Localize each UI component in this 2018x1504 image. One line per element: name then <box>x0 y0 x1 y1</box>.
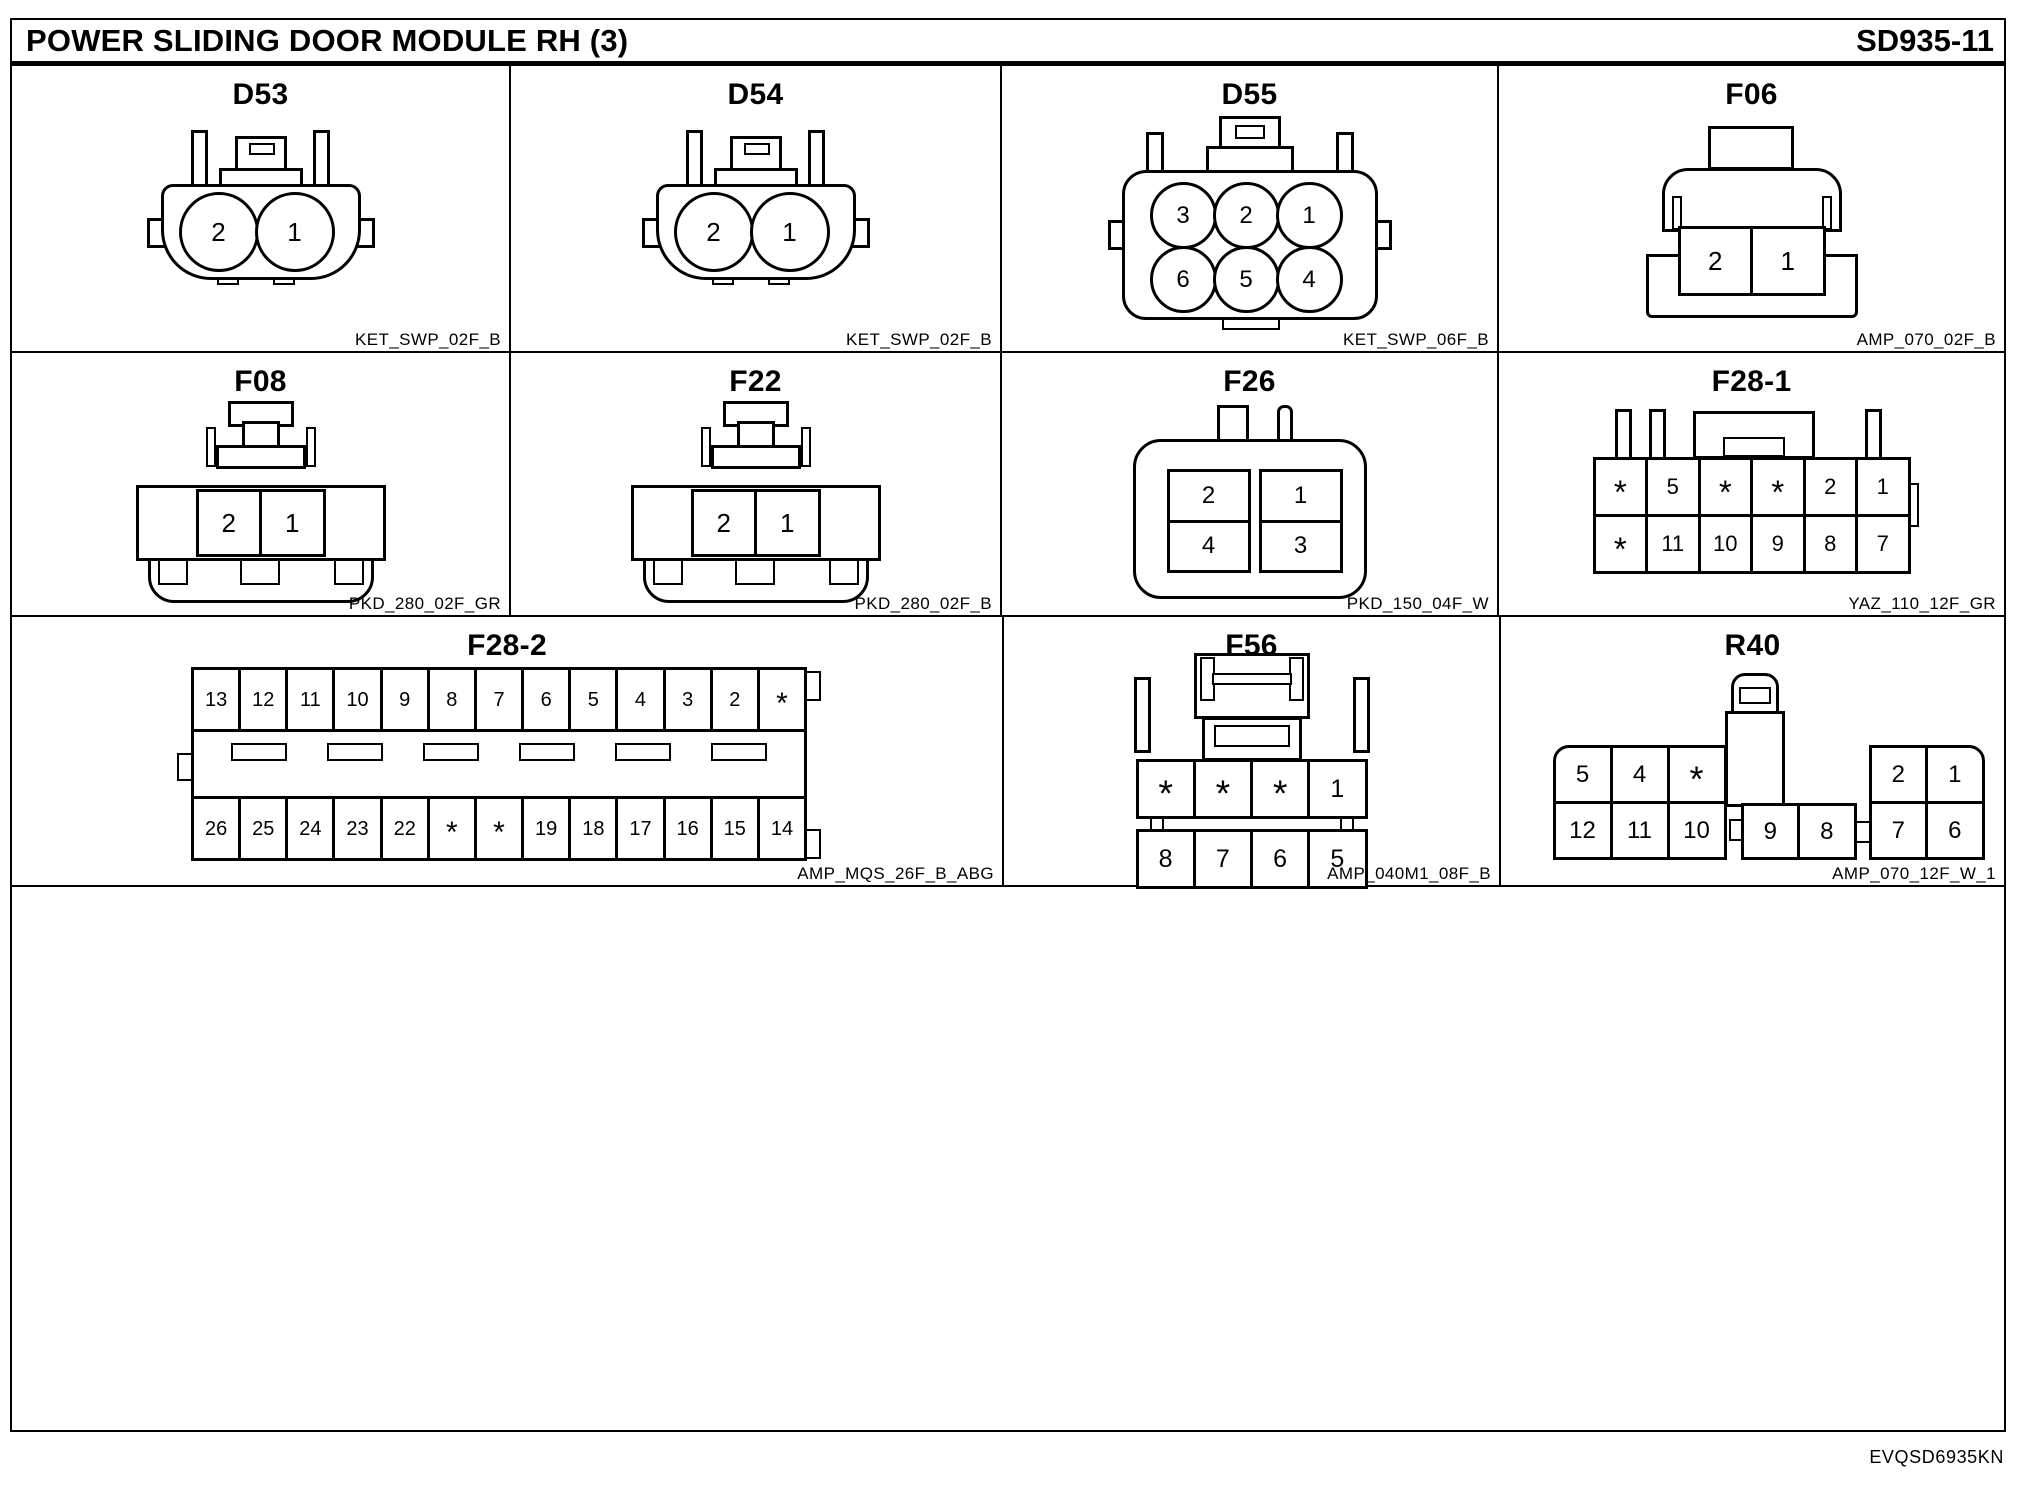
pin-6: 6 <box>521 667 571 732</box>
pin-unused: * <box>1750 457 1806 517</box>
pin-2: 2 <box>1167 469 1251 523</box>
pin-9: 9 <box>1750 514 1806 574</box>
grid-row-4-empty <box>12 887 2004 1419</box>
mount-tab <box>1217 405 1249 443</box>
keying-slot <box>327 743 383 761</box>
connector-drawing-f06: 21 <box>1646 126 1858 322</box>
pin-7: 7 <box>1869 801 1929 860</box>
connector-drawing-f26: 24 13 <box>1133 405 1367 603</box>
connector-title-d54: D54 <box>511 66 1000 112</box>
part-number-f26: PKD_150_04F_W <box>1347 594 1489 614</box>
pin-2: 2 <box>691 489 758 557</box>
latch-post <box>306 427 316 467</box>
latch-post <box>701 427 711 467</box>
latch-arms <box>711 445 801 469</box>
latch-tab <box>1708 126 1794 170</box>
pin-cavities-right-top: 21 <box>1869 745 1985 804</box>
pin-cavities-right: 13 <box>1259 469 1343 573</box>
foot <box>653 559 683 585</box>
pin-3: 3 <box>1150 182 1217 249</box>
pin-3: 3 <box>1259 520 1343 574</box>
pin-1: 1 <box>255 192 335 272</box>
cell-f06: F06 21 AMP_070_02F_B <box>1499 66 2004 351</box>
pin-cavities-left-bottom: 121110 <box>1553 801 1727 860</box>
latch-arms <box>216 445 306 469</box>
pin-cavities: 21 <box>179 192 335 272</box>
part-number-f28-1: YAZ_110_12F_GR <box>1848 594 1996 614</box>
pin-25: 25 <box>238 796 288 861</box>
pin-1: 1 <box>1307 759 1367 819</box>
latch-notch <box>1739 687 1771 704</box>
pin-unused: * <box>1593 514 1649 574</box>
header-bar: POWER SLIDING DOOR MODULE RH (3) SD935-1… <box>12 20 2004 66</box>
connector-drawing-r40: 54* 121110 98 21 76 <box>1543 673 1963 865</box>
pin-unused: * <box>757 667 807 732</box>
connector-title-f26: F26 <box>1002 353 1497 399</box>
part-number-f28-2: AMP_MQS_26F_B_ABG <box>797 864 994 884</box>
pin-2: 2 <box>1213 182 1280 249</box>
latch-post <box>206 427 216 467</box>
latch-notch <box>744 143 770 155</box>
tower-base <box>1725 711 1785 807</box>
cell-f28-1: F28-1 *5**21 *1110987 YAZ_110_12F_GR <box>1499 353 2004 615</box>
keying-slot <box>519 743 575 761</box>
cell-d54: D54 21 KET_SWP_02F_B <box>511 66 1002 351</box>
pin-26: 26 <box>191 796 241 861</box>
page-frame: POWER SLIDING DOOR MODULE RH (3) SD935-1… <box>10 18 2006 1432</box>
pin-1: 1 <box>750 192 830 272</box>
foot <box>735 559 775 585</box>
grid-row-1: D53 21 KET_SWP_02F_B D54 <box>12 66 2004 353</box>
corner-tab <box>805 829 821 859</box>
pin-6: 6 <box>1150 246 1217 313</box>
connector-drawing-f56: ***1 8765 <box>1134 653 1370 889</box>
foot <box>334 559 364 585</box>
pin-1: 1 <box>1276 182 1343 249</box>
part-number-f22: PKD_280_02F_B <box>854 594 992 614</box>
pin-cavities: 21 <box>196 489 326 557</box>
pin-1: 1 <box>1855 457 1911 517</box>
pin-unused: * <box>1667 745 1727 804</box>
pin-cavities-row1: *5**21 <box>1593 457 1911 517</box>
pin-1: 1 <box>259 489 326 557</box>
pin-cavities-mid-bottom: 98 <box>1741 803 1857 860</box>
connector-title-f28-2: F28-2 <box>12 617 1002 663</box>
pin-2: 2 <box>196 489 263 557</box>
cell-d55: D55 321 654 KET_SWP_06F_B <box>1002 66 1499 351</box>
lock-prong <box>808 130 825 192</box>
connector-title-r40: R40 <box>1501 617 2004 663</box>
pin-unused: * <box>1593 457 1649 517</box>
lock-prong <box>1649 409 1666 461</box>
pin-18: 18 <box>568 796 618 861</box>
pin-4: 4 <box>1610 745 1670 804</box>
document-code: EVQSD6935KN <box>1869 1447 2004 1468</box>
part-number-f06: AMP_070_02F_B <box>1857 330 1996 350</box>
hood <box>1662 168 1842 232</box>
pin-cavities-row1: ***1 <box>1136 759 1368 819</box>
pin-unused: * <box>1698 457 1754 517</box>
pin-12: 12 <box>238 667 288 732</box>
part-number-f56: AMP_040M1_08F_B <box>1327 864 1491 884</box>
lock-prong <box>1615 409 1632 461</box>
foot <box>158 559 188 585</box>
pin-4: 4 <box>1167 520 1251 574</box>
lock-prong <box>1353 677 1370 753</box>
connector-drawing-f22: 21 <box>631 401 881 607</box>
pin-cavities-row2: 654 <box>1150 246 1343 313</box>
pin-unused: * <box>474 796 524 861</box>
lock-prong <box>1865 409 1882 461</box>
pin-24: 24 <box>285 796 335 861</box>
pin-5: 5 <box>1645 457 1701 517</box>
cell-f56: F56 ***1 8765 AMP_040M1_08F_B <box>1004 617 1501 885</box>
pin-cavities: 21 <box>691 489 821 557</box>
pin-13: 13 <box>191 667 241 732</box>
grid-row-2: F08 21 PKD_280_02F_GR F22 <box>12 353 2004 617</box>
pin-unused: * <box>1250 759 1310 819</box>
pin-7: 7 <box>1193 829 1253 889</box>
pin-6: 6 <box>1925 801 1985 860</box>
pin-cavities: 21 <box>674 192 830 272</box>
keying-slot <box>615 743 671 761</box>
part-number-d55: KET_SWP_06F_B <box>1343 330 1489 350</box>
pin-cavities-row1: 1312111098765432* <box>191 667 807 732</box>
connector-title-f06: F06 <box>1499 66 2004 112</box>
pin-cavities-left-top: 54* <box>1553 745 1727 804</box>
pin-9: 9 <box>380 667 430 732</box>
pin-10: 10 <box>332 667 382 732</box>
lock-prong <box>1134 677 1151 753</box>
cell-r40: R40 54* 121110 98 21 76 AMP_070_12F_W_1 <box>1501 617 2004 885</box>
pin-2: 2 <box>1869 745 1929 804</box>
connector-drawing-f28-1: *5**21 *1110987 <box>1593 409 1911 585</box>
pin-unused: * <box>1136 759 1196 819</box>
pin-unused: * <box>1193 759 1253 819</box>
pin-cavities: 21 <box>1678 226 1826 296</box>
page-code: SD935-11 <box>1764 23 2004 59</box>
foot <box>829 559 859 585</box>
cell-f28-2: F28-2 1312111098765432* 2625242322**1918… <box>12 617 1004 885</box>
pin-22: 22 <box>380 796 430 861</box>
pin-1: 1 <box>1750 226 1826 296</box>
part-number-d54: KET_SWP_02F_B <box>846 330 992 350</box>
pin-19: 19 <box>521 796 571 861</box>
latch-notch <box>1235 125 1265 139</box>
corner-tab <box>805 671 821 701</box>
pin-2: 2 <box>710 667 760 732</box>
connector-title-f28-1: F28-1 <box>1499 353 2004 399</box>
pin-cavities-row2: *1110987 <box>1593 514 1911 574</box>
connector-drawing-d55: 321 654 <box>1118 116 1382 330</box>
pin-cavities-right-bottom: 76 <box>1869 801 1985 860</box>
grid-row-3: F28-2 1312111098765432* 2625242322**1918… <box>12 617 2004 887</box>
pin-15: 15 <box>710 796 760 861</box>
connector-title-f22: F22 <box>511 353 1000 399</box>
cell-f22: F22 21 PKD_280_02F_B <box>511 353 1002 615</box>
pin-5: 5 <box>1213 246 1280 313</box>
part-number-d53: KET_SWP_02F_B <box>355 330 501 350</box>
connector-drawing-f08: 21 <box>136 401 386 607</box>
cell-f08: F08 21 PKD_280_02F_GR <box>12 353 511 615</box>
mount-tab <box>1277 405 1293 443</box>
pin-cavities-row2: 2625242322**191817161514 <box>191 796 807 861</box>
latch-bar <box>1212 673 1292 685</box>
pin-10: 10 <box>1698 514 1754 574</box>
keying-slot <box>231 743 287 761</box>
connector-title-f08: F08 <box>12 353 509 399</box>
pin-3: 3 <box>663 667 713 732</box>
pin-11: 11 <box>1645 514 1701 574</box>
connector-title-d53: D53 <box>12 66 509 112</box>
pin-4: 4 <box>615 667 665 732</box>
lock-prong <box>313 130 330 192</box>
part-number-f08: PKD_280_02F_GR <box>349 594 501 614</box>
pin-11: 11 <box>1610 801 1670 860</box>
pin-7: 7 <box>1855 514 1911 574</box>
pin-23: 23 <box>332 796 382 861</box>
pin-5: 5 <box>568 667 618 732</box>
neck-inner <box>1214 725 1290 747</box>
page-title: POWER SLIDING DOOR MODULE RH (3) <box>12 23 1764 59</box>
latch-notch <box>249 143 275 155</box>
foot <box>240 559 280 585</box>
cell-f26: F26 24 13 PKD_150_04F_W <box>1002 353 1499 615</box>
hood-notch <box>1822 196 1832 230</box>
pin-2: 2 <box>1678 226 1754 296</box>
keying-slot <box>423 743 479 761</box>
pin-8: 8 <box>1803 514 1859 574</box>
latch-post <box>801 427 811 467</box>
pin-1: 1 <box>754 489 821 557</box>
pin-9: 9 <box>1741 803 1801 860</box>
pin-8: 8 <box>1136 829 1196 889</box>
pin-12: 12 <box>1553 801 1613 860</box>
pin-2: 2 <box>179 192 259 272</box>
pin-17: 17 <box>615 796 665 861</box>
pin-1: 1 <box>1259 469 1343 523</box>
lock-prong <box>686 130 703 192</box>
lock-prong <box>191 130 208 192</box>
hood-notch <box>1672 196 1682 230</box>
cell-d53: D53 21 KET_SWP_02F_B <box>12 66 511 351</box>
pin-10: 10 <box>1667 801 1727 860</box>
keying-slot <box>711 743 767 761</box>
connector-drawing-d53: 21 <box>155 130 367 286</box>
pin-2: 2 <box>1803 457 1859 517</box>
pin-16: 16 <box>663 796 713 861</box>
pin-cavities-left: 24 <box>1167 469 1251 573</box>
pin-unused: * <box>427 796 477 861</box>
pin-cavities-row1: 321 <box>1150 182 1343 249</box>
connector-title-d55: D55 <box>1002 66 1497 112</box>
pin-7: 7 <box>474 667 524 732</box>
pin-5: 5 <box>1553 745 1613 804</box>
pin-1: 1 <box>1925 745 1985 804</box>
connector-drawing-f28-2: 1312111098765432* 2625242322**1918171615… <box>187 667 827 867</box>
keying-slots <box>191 729 807 761</box>
pin-8: 8 <box>1797 803 1857 860</box>
connector-drawing-d54: 21 <box>650 130 862 286</box>
pin-8: 8 <box>427 667 477 732</box>
pin-14: 14 <box>757 796 807 861</box>
pin-6: 6 <box>1250 829 1310 889</box>
pin-2: 2 <box>674 192 754 272</box>
latch-notch <box>1723 437 1785 457</box>
pin-4: 4 <box>1276 246 1343 313</box>
part-number-r40: AMP_070_12F_W_1 <box>1832 864 1996 884</box>
pin-11: 11 <box>285 667 335 732</box>
